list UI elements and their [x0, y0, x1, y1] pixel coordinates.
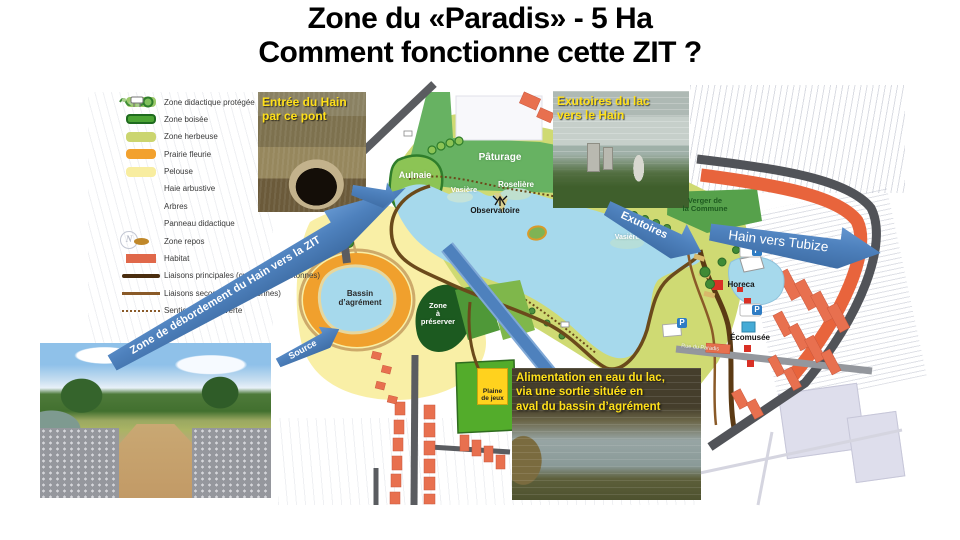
- legend-row: Zone repos: [118, 235, 320, 247]
- plaine-de-jeux-box: Plaine de jeux: [477, 368, 508, 405]
- legend-label: Arbres: [164, 202, 188, 211]
- legend-swatch-pelouse: [126, 167, 156, 177]
- legend-swatch-zone-repos: [134, 238, 149, 245]
- caption-line: Entrée du Hain: [262, 95, 347, 109]
- caption-line: par ce pont: [262, 109, 347, 123]
- bassin-pond: [319, 266, 394, 333]
- photo-lake-feed: Alimentation en eau du lac, via une sort…: [512, 368, 701, 500]
- photo-caption: Entrée du Hain par ce pont: [262, 95, 347, 123]
- vasiere-nord-patch: [447, 192, 473, 203]
- legend-label: Pelouse: [164, 167, 193, 176]
- riprap-stones-right: [192, 428, 271, 498]
- legend-label: Habitat: [164, 254, 189, 263]
- legend-label: Prairie fleurie: [164, 150, 211, 159]
- caption-line: Exutoires du lac: [557, 94, 650, 108]
- legend-label: Zone didactique protégée: [164, 98, 255, 107]
- slide: { "title": { "line1": "Zone du «Paradis»…: [0, 0, 960, 540]
- photo-caption: Alimentation en eau du lac, via une sort…: [516, 371, 665, 414]
- label-plaine-line: Plaine: [483, 388, 502, 395]
- legend-swatch-habitat: [126, 254, 156, 263]
- legend-swatch-liaisons-principales: [122, 274, 160, 278]
- legend-swatch-prairie-fleurie: [126, 149, 156, 159]
- east-road-branch: [430, 447, 510, 452]
- legend-swatch-zone-boisee: [126, 114, 156, 124]
- vasiere-est-patch: [610, 237, 644, 249]
- ecomusee-marker: [742, 322, 755, 332]
- legend-label: Zone boisée: [164, 115, 208, 124]
- parking-icon: P: [677, 318, 687, 328]
- photo-lake-outlets: Exutoires du lac vers le Hain: [553, 91, 689, 208]
- caption-line: vers le Hain: [557, 108, 650, 122]
- photo-caption: Exutoires du lac vers le Hain: [557, 94, 650, 122]
- photo-hain-entrance: Entrée du Hain par ce pont: [258, 92, 366, 212]
- legend-swatch-liaisons-secondaires: [122, 292, 160, 295]
- caption-line: Alimentation en eau du lac,: [516, 371, 665, 385]
- caption-line: aval du bassin d’agrément: [516, 400, 665, 414]
- concrete-pillar: [603, 147, 613, 170]
- legend-swatch-sentier: [122, 310, 160, 312]
- legend-label: Haie arbustive: [164, 184, 215, 193]
- legend-swatch-panneau-icon: [118, 96, 156, 108]
- legend-label: Zone herbeuse: [164, 132, 218, 141]
- legend-label: Zone repos: [164, 237, 204, 246]
- concrete-pillar: [587, 143, 600, 172]
- caption-line: via une sortie située en: [516, 385, 665, 399]
- legend-swatch-zone-herbeuse: [126, 132, 156, 142]
- riprap-stones-left: [40, 428, 119, 498]
- label-plaine-line: de jeux: [481, 395, 503, 402]
- legend-row: Panneau didactique: [118, 218, 320, 230]
- legend-label: Panneau didactique: [164, 219, 235, 228]
- cadastral-streets: [700, 430, 902, 505]
- photo-dike-path: [40, 343, 271, 498]
- parking-icon: P: [752, 305, 762, 315]
- south-road: [414, 355, 415, 505]
